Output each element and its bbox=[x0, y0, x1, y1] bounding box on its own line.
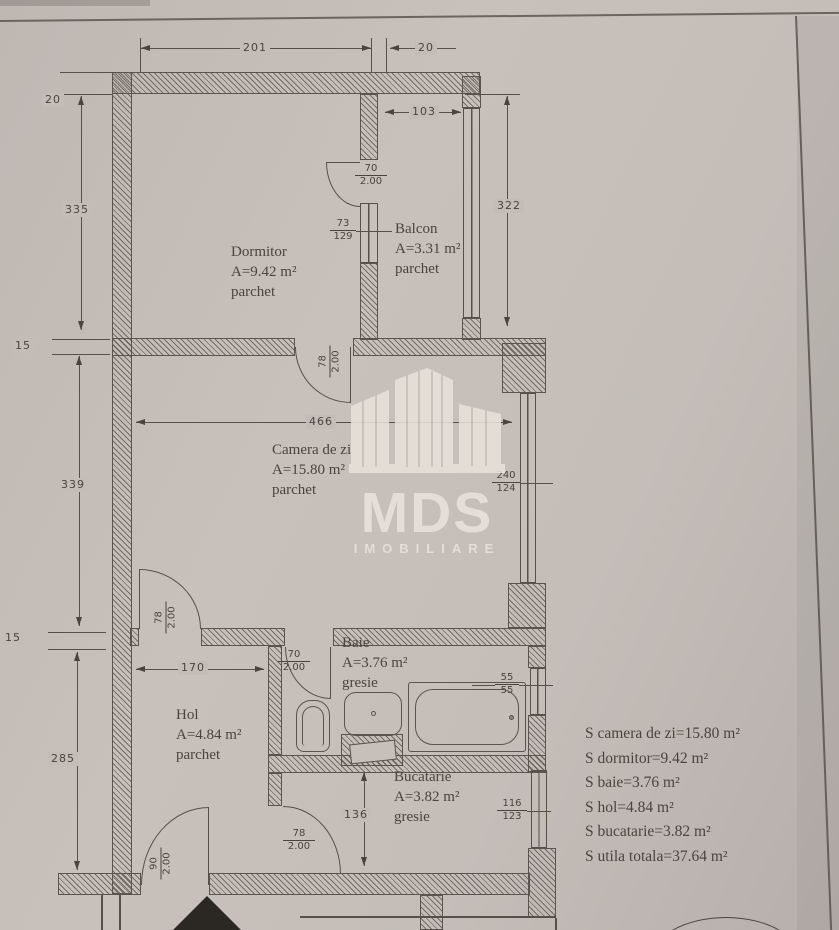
bathtub-drain bbox=[509, 715, 514, 720]
door-size-label: 702.00 bbox=[355, 163, 387, 188]
agency-watermark: MDS IMOBILIARE bbox=[343, 364, 511, 557]
summary-line: S baie=3.76 m² bbox=[585, 771, 740, 796]
wall-segment bbox=[420, 895, 443, 930]
sink-counter bbox=[341, 734, 403, 766]
window bbox=[530, 668, 546, 715]
window-size-label: 73129 bbox=[330, 218, 356, 243]
dim-label: 339 bbox=[58, 478, 88, 492]
bathtub-inner bbox=[415, 689, 519, 745]
dim-arrow bbox=[504, 317, 510, 326]
summary-line: S camera de zi=15.80 m² bbox=[585, 722, 740, 747]
stamp-arc bbox=[650, 917, 802, 930]
buildings-logo-icon bbox=[349, 364, 505, 478]
door-size-label: 782.00 bbox=[283, 828, 315, 853]
dim-tick bbox=[386, 38, 387, 72]
wall-segment bbox=[112, 338, 295, 356]
watermark-brand: MDS bbox=[343, 485, 511, 541]
summary-line: S utila totala=37.64 m² bbox=[585, 845, 740, 870]
dim-arrow bbox=[361, 772, 367, 781]
dim-tick bbox=[52, 339, 110, 340]
dim-arrow bbox=[452, 109, 461, 115]
dim-arrow bbox=[76, 356, 82, 365]
dim-arrow bbox=[141, 45, 150, 51]
toilet-bowl bbox=[302, 706, 324, 746]
wall-segment bbox=[112, 72, 480, 94]
dim-label: 20 bbox=[42, 93, 64, 107]
dim-arrow bbox=[76, 617, 82, 626]
wall-segment bbox=[528, 848, 556, 918]
wall-segment bbox=[508, 583, 546, 628]
window bbox=[531, 770, 547, 848]
dim-arrow bbox=[362, 45, 371, 51]
door-size-label: 782.00 bbox=[318, 346, 343, 378]
watermark-tagline: IMOBILIARE bbox=[343, 541, 511, 557]
dim-arrow bbox=[78, 96, 84, 105]
dim-leader bbox=[356, 231, 392, 232]
paper-right-shade bbox=[797, 16, 839, 930]
dim-label: 322 bbox=[494, 199, 524, 213]
wall-segment bbox=[58, 873, 141, 895]
wall-segment bbox=[528, 715, 546, 772]
dim-tick bbox=[60, 94, 112, 95]
window bbox=[463, 108, 480, 318]
toilet bbox=[296, 700, 330, 752]
dim-label: 170 bbox=[178, 661, 208, 675]
dim-arrow bbox=[504, 96, 510, 105]
door-size-label: 902.00 bbox=[149, 848, 174, 880]
entrance-marker bbox=[167, 896, 247, 930]
room-label-balcon: Balcon A=3.31 m² parchet bbox=[395, 220, 460, 279]
plan-line bbox=[101, 895, 103, 930]
plan-line bbox=[119, 895, 121, 930]
dim-arrow bbox=[74, 652, 80, 661]
photo-corner-shadow bbox=[0, 0, 150, 6]
door-size-label: 702.00 bbox=[278, 649, 310, 674]
dim-arrow bbox=[78, 321, 84, 330]
dim-label: 20 bbox=[415, 41, 437, 55]
dim-label: 103 bbox=[409, 105, 439, 119]
dim-arrow bbox=[136, 419, 145, 425]
dim-label: 285 bbox=[48, 752, 78, 766]
dim-label: 15 bbox=[2, 631, 24, 645]
dim-label: 136 bbox=[341, 808, 371, 822]
dim-label: 335 bbox=[62, 203, 92, 217]
plan-line bbox=[300, 916, 556, 918]
room-label-camera-de-zi: Camera de zi A=15.80 m² parchet bbox=[272, 441, 351, 500]
dim-arrow bbox=[390, 45, 399, 51]
sink-counter-front bbox=[349, 740, 397, 765]
dim-tick bbox=[371, 38, 372, 72]
dim-tick bbox=[52, 354, 110, 355]
dim-label: 466 bbox=[306, 415, 336, 429]
window-size-label: 116123 bbox=[497, 798, 527, 823]
floor-plan-scan: 201 20 20 335 15 339 15 285 103 322 466 … bbox=[0, 0, 839, 930]
wall-segment bbox=[209, 873, 530, 895]
paper-top-edge bbox=[0, 12, 839, 22]
dim-arrow bbox=[361, 857, 367, 866]
window bbox=[520, 393, 536, 583]
summary-line: S bucatarie=3.82 m² bbox=[585, 820, 740, 845]
door-size-label: 782.00 bbox=[154, 602, 179, 634]
sink bbox=[344, 692, 402, 736]
sink-drain bbox=[371, 711, 376, 716]
dim-leader bbox=[527, 811, 551, 812]
window bbox=[360, 203, 378, 263]
dim-arrow bbox=[74, 861, 80, 870]
area-summary: S camera de zi=15.80 m² S dormitor=9.42 … bbox=[585, 722, 740, 869]
wall-segment bbox=[360, 263, 378, 340]
dim-arrow bbox=[136, 666, 145, 672]
wall-segment bbox=[462, 318, 481, 340]
dim-tick bbox=[140, 38, 141, 72]
room-label-dormitor: Dormitor A=9.42 m² parchet bbox=[231, 243, 296, 302]
plan-line bbox=[555, 918, 557, 930]
wall-segment bbox=[360, 94, 378, 160]
wall-segment bbox=[528, 646, 546, 668]
wall-segment bbox=[268, 773, 282, 806]
room-label-bucatarie: Bucatarie A=3.82 m² gresie bbox=[394, 768, 459, 827]
dim-leader bbox=[520, 483, 553, 484]
window-size-label: 5555 bbox=[495, 672, 519, 697]
dim-arrow bbox=[385, 109, 394, 115]
dim-tick bbox=[48, 632, 106, 633]
dim-label: 201 bbox=[240, 41, 270, 55]
summary-line: S dormitor=9.42 m² bbox=[585, 747, 740, 772]
summary-line: S hol=4.84 m² bbox=[585, 796, 740, 821]
dim-tick bbox=[60, 72, 112, 73]
wall-segment bbox=[112, 72, 132, 894]
room-label-hol: Hol A=4.84 m² parchet bbox=[176, 706, 241, 765]
wall-segment bbox=[130, 628, 139, 646]
room-label-baie: Baie A=3.76 m² gresie bbox=[342, 634, 407, 693]
dim-arrow bbox=[255, 666, 264, 672]
dim-tick bbox=[465, 94, 520, 95]
dim-tick bbox=[48, 649, 106, 650]
wall-segment bbox=[462, 76, 481, 108]
wall-segment bbox=[201, 628, 285, 646]
dim-label: 15 bbox=[12, 339, 34, 353]
